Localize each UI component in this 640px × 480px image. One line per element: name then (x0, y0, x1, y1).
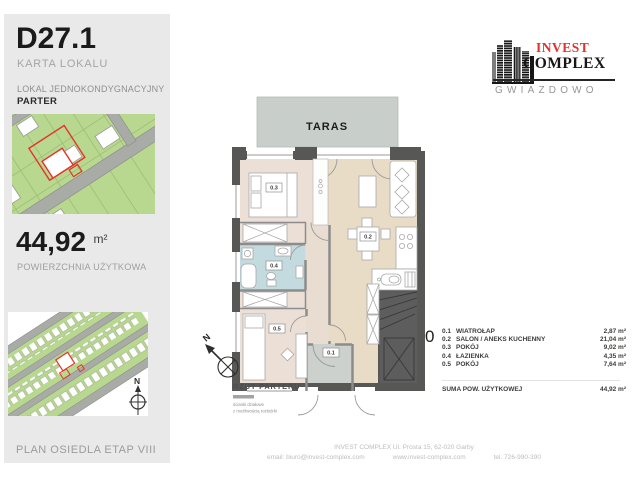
sidebar: D27.1 KARTA LOKALU LOKAL JEDNOKONDYGNACY… (4, 14, 170, 463)
card-subtitle: KARTA LOKALU (17, 58, 108, 70)
room-no: 0.5 (442, 361, 456, 369)
room-area: 2,87 m² (586, 328, 626, 336)
room-label-01: 0.1 (327, 351, 335, 357)
legend-row: 0.4 ŁAZIENKA 4,35 m² (442, 353, 626, 361)
plan-note-line2: z możliwością rozbiórki (233, 409, 277, 414)
usable-area-value: 44,92 (16, 226, 86, 257)
footer-contacts: email: biuro@invest-complex.com www.inve… (204, 453, 604, 463)
legend-rows: 0.1 WIATROŁAP 2,87 m² 0.2 SALON / ANEKS … (442, 325, 626, 369)
brand-location: GWIAZDOWO (495, 85, 598, 96)
legend-row: 0.1 WIATROŁAP 2,87 m² (442, 328, 626, 336)
room-area: 21,04 m² (586, 336, 626, 344)
unit-type-label: LOKAL JEDNOKONDYGNACYJNY (17, 84, 165, 94)
wall-pier-left (232, 147, 246, 160)
room-label-05: 0.5 (273, 327, 281, 333)
total-area: 44,92 m² (586, 386, 626, 394)
room-no: 0.3 (442, 344, 456, 352)
usable-area: 44,92 m² (16, 226, 108, 258)
logo-divider (493, 79, 615, 81)
legend-row: 0.3 POKÓJ 9,02 m² (442, 344, 626, 352)
floor-plan: TARAS (195, 88, 445, 428)
unit-id: D27.1 (16, 22, 96, 56)
room-no: 0.1 (442, 328, 456, 336)
room-name: POKÓJ (456, 361, 586, 369)
partition-wall-swatch (233, 395, 254, 399)
footer: INVEST COMPLEX Ul. Prosta 15, 62-020 Gar… (204, 443, 604, 463)
footer-phone: tel. 726-990-390 (494, 453, 541, 463)
floor-number: 0 (425, 327, 434, 347)
room-label-03: 0.3 (270, 186, 278, 192)
legend-total-row: SUMA POW. UŻYTKOWEJ 44,92 m² (442, 386, 626, 394)
floor-type-label: PARTER (17, 96, 57, 107)
room-name: WIATROŁAP (456, 328, 586, 336)
total-label: SUMA POW. UŻYTKOWEJ (442, 386, 586, 394)
room-label-02: 0.2 (364, 235, 372, 241)
estate-plan-label: PLAN OSIEDLA ETAP VIII (16, 444, 156, 456)
room-area: 7,64 m² (586, 361, 626, 369)
room-label-04: 0.4 (270, 264, 279, 270)
brand-name-complex: COMPLEX (523, 55, 606, 73)
wall-pier-right (390, 147, 421, 160)
wall-pier-mid (295, 147, 317, 160)
footer-website: www.invest-complex.com (393, 453, 466, 463)
terrace-label: TARAS (306, 121, 348, 133)
estate-plan-map: N (8, 312, 148, 416)
karta-lokalu-page: D27.1 KARTA LOKALU LOKAL JEDNOKONDYGNACY… (0, 0, 640, 480)
room-no: 0.2 (442, 336, 456, 344)
site-plan-detail-map (12, 114, 155, 214)
legend-row: 0.5 POKÓJ 7,64 m² (442, 361, 626, 369)
footer-email: email: biuro@invest-complex.com (267, 453, 365, 463)
room-area: 9,02 m² (586, 344, 626, 352)
room-area: 4,35 m² (586, 353, 626, 361)
glass-partition (313, 159, 328, 225)
room-no: 0.4 (442, 353, 456, 361)
north-letter-plan: N (201, 332, 212, 344)
brand-name-invest: INVEST (536, 40, 589, 56)
room-legend: 0 0.1 WIATROŁAP 2,87 m² 0.2 SALON / ANEK… (424, 325, 626, 394)
brand-logo: INVEST COMPLEX GWIAZDOWO (492, 34, 618, 104)
north-letter: N (134, 376, 140, 386)
room-name: POKÓJ (456, 344, 586, 352)
legend-divider (442, 380, 620, 381)
plan-note-line1: ścianki działowe (233, 402, 265, 407)
area-unit: m² (94, 232, 108, 246)
room-name: ŁAZIENKA (456, 353, 586, 361)
usable-area-label: POWIERZCHNIA UŻYTKOWA (17, 262, 146, 272)
plan-caption: RZUT PARTERU (233, 382, 300, 391)
company-address: INVEST COMPLEX Ul. Prosta 15, 62-020 Gar… (204, 443, 604, 453)
